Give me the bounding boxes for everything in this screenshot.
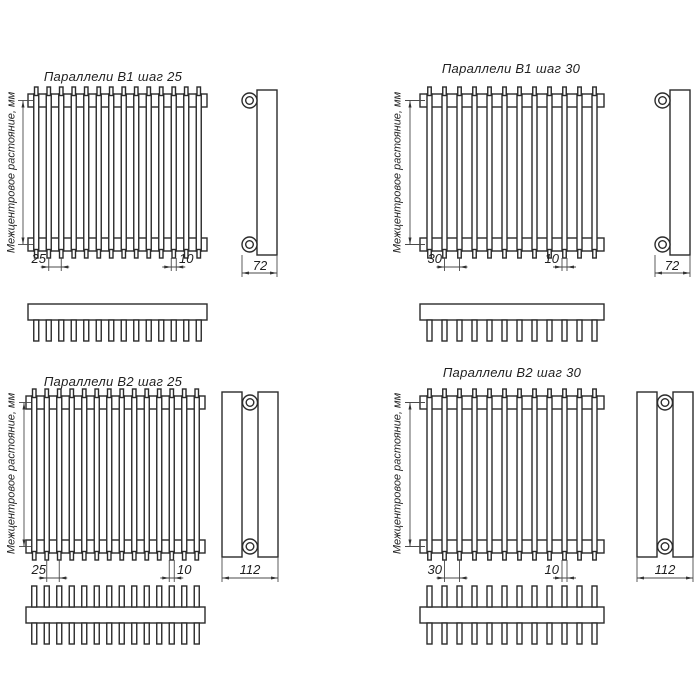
center-distance-label-q3: Межцентровое растояние, мм bbox=[6, 389, 19, 559]
radiator-drawing-b2-step-25 bbox=[19, 389, 278, 644]
tube-width-dimension-q3: 10 bbox=[177, 563, 191, 577]
radiator-line-art bbox=[0, 0, 700, 700]
drawing-title-b1-step-25: Параллели В1 шаг 25 bbox=[44, 70, 182, 84]
top-view bbox=[26, 586, 205, 644]
side-view bbox=[655, 90, 690, 255]
depth-dimension-q3: 112 bbox=[220, 563, 280, 577]
front-view bbox=[420, 389, 604, 560]
drawing-title-b1-step-30: Параллели В1 шаг 30 bbox=[442, 62, 580, 76]
radiator-drawing-b2-step-30 bbox=[405, 389, 693, 644]
center-distance-label-q4: Межцентровое растояние, мм bbox=[392, 389, 405, 559]
front-view bbox=[28, 87, 207, 258]
depth-dimension-q2: 72 bbox=[642, 259, 700, 273]
pitch-dimension-q1: 25 bbox=[8, 252, 46, 266]
top-view bbox=[420, 304, 604, 341]
center-distance-label-q1: Межцентровое растояние, мм bbox=[6, 88, 19, 258]
depth-dimension-q4: 112 bbox=[635, 563, 695, 577]
front-view bbox=[420, 87, 604, 258]
center-distance-label-q2: Межцентровое растояние, мм bbox=[392, 88, 405, 258]
pitch-dimension-q2: 30 bbox=[404, 252, 442, 266]
top-view bbox=[420, 586, 604, 644]
drawing-title-b2-step-25: Параллели В2 шаг 25 bbox=[44, 375, 182, 389]
front-view bbox=[26, 389, 205, 560]
tube-width-dimension-q4: 10 bbox=[521, 563, 559, 577]
side-view bbox=[222, 392, 278, 557]
pitch-dimension-q4: 30 bbox=[404, 563, 442, 577]
radiator-drawing-b1-step-30 bbox=[405, 87, 690, 341]
tube-width-dimension-q1: 10 bbox=[179, 252, 193, 266]
drawing-title-b2-step-30: Параллели В2 шаг 30 bbox=[443, 366, 581, 380]
side-view bbox=[637, 392, 693, 557]
pitch-dimension-q3: 25 bbox=[8, 563, 46, 577]
side-view bbox=[242, 90, 277, 255]
radiator-drawing-b1-step-25 bbox=[18, 87, 277, 341]
top-view bbox=[28, 304, 207, 341]
drawing-sheet: Параллели В1 шаг 25 Параллели В1 шаг 30 … bbox=[0, 0, 700, 700]
tube-width-dimension-q2: 10 bbox=[521, 252, 559, 266]
depth-dimension-q1: 72 bbox=[230, 259, 290, 273]
